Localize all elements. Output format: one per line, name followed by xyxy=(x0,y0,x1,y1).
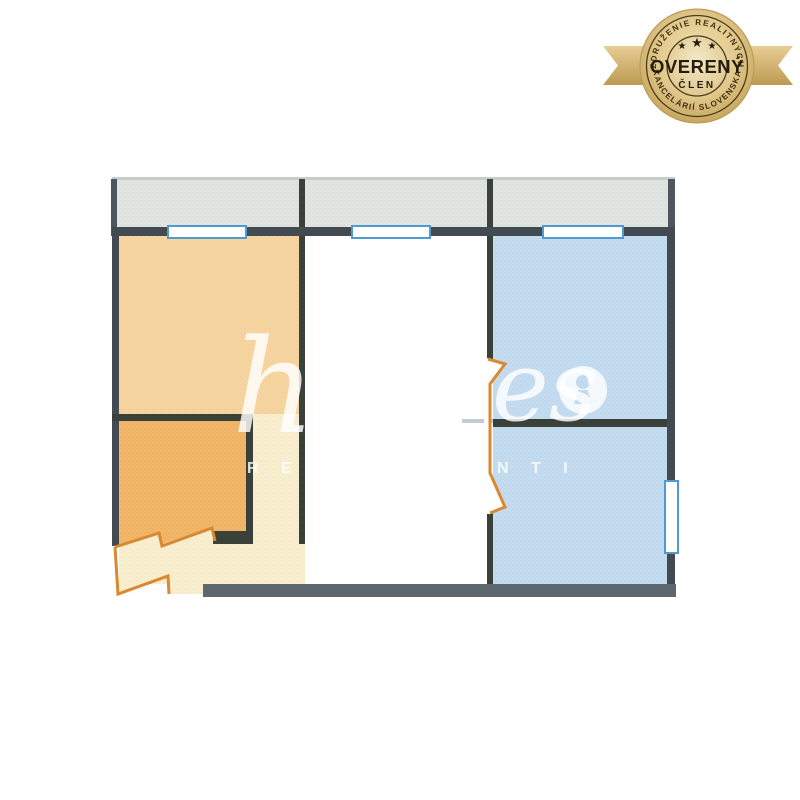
wall-mid-right-lower xyxy=(487,513,493,584)
window-right xyxy=(543,226,623,238)
certification-badge: ZDRUŽENIE REALITNÝCH KANCELÁRIÍ SLOVENSK… xyxy=(603,9,793,123)
wall-bottom xyxy=(203,584,676,597)
watermark-tagline-left: R E A xyxy=(247,460,334,477)
window-left xyxy=(168,226,246,238)
page-background: h es R E A N T I ZDRUŽENIE REALITNÝCH KA… xyxy=(0,0,800,800)
floorplan-image: h es R E A N T I ZDRUŽENIE REALITNÝCH KA… xyxy=(0,0,800,800)
watermark-script-mid: es xyxy=(492,331,598,443)
wall-left xyxy=(112,227,119,546)
window-side xyxy=(665,481,678,553)
star-icon: ★ xyxy=(708,41,717,52)
badge-subtitle: ČLEN xyxy=(678,78,715,91)
watermark-script-left: h xyxy=(232,311,316,463)
badge-title: OVERENÝ xyxy=(650,56,744,77)
window-middle xyxy=(352,226,430,238)
star-icon: ★ xyxy=(678,41,687,52)
balcony-top-line xyxy=(112,177,675,180)
star-icon: ★ xyxy=(691,35,703,50)
room-center xyxy=(305,236,487,584)
watermark-keyhole-o-icon xyxy=(559,366,607,414)
wall-small-room-bottom xyxy=(213,531,253,544)
watermark-tagline-right: N T I xyxy=(497,460,577,477)
